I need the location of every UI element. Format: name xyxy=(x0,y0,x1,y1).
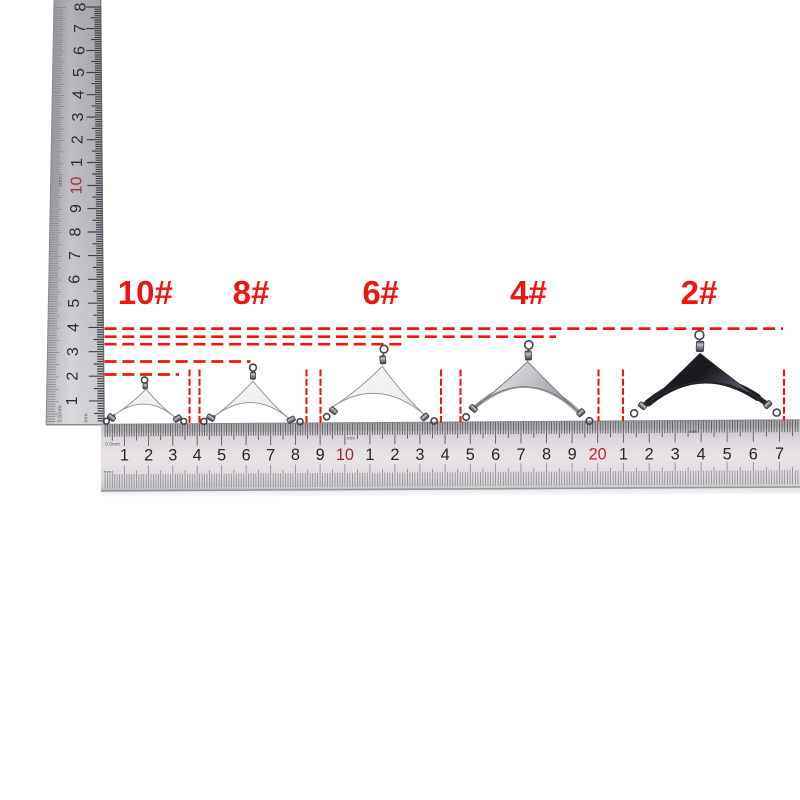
svg-text:2#: 2# xyxy=(681,274,718,311)
svg-text:3: 3 xyxy=(415,446,424,464)
svg-text:5: 5 xyxy=(71,68,88,77)
svg-text:5: 5 xyxy=(66,299,83,308)
svg-text:2: 2 xyxy=(645,446,654,464)
svg-text:0.5mm: 0.5mm xyxy=(58,405,64,422)
svg-text:4: 4 xyxy=(66,323,83,332)
svg-text:0.5mm: 0.5mm xyxy=(105,441,120,447)
svg-text:1: 1 xyxy=(365,446,374,464)
svg-text:mm: mm xyxy=(689,430,697,435)
svg-text:10#: 10# xyxy=(118,274,173,311)
svg-text:10: 10 xyxy=(336,446,354,464)
svg-text:6: 6 xyxy=(71,46,88,55)
svg-text:3: 3 xyxy=(168,447,177,465)
svg-text:8: 8 xyxy=(68,227,85,236)
svg-text:mm: mm xyxy=(58,176,64,186)
svg-text:1: 1 xyxy=(69,158,86,167)
svg-text:6: 6 xyxy=(491,446,500,464)
svg-text:2: 2 xyxy=(144,447,153,465)
svg-text:2: 2 xyxy=(65,372,82,381)
svg-text:8: 8 xyxy=(542,446,551,464)
svg-text:6: 6 xyxy=(242,446,251,464)
svg-text:5: 5 xyxy=(466,446,475,464)
svg-text:2: 2 xyxy=(390,446,399,464)
svg-text:mm: mm xyxy=(347,437,355,442)
svg-text:4: 4 xyxy=(441,446,450,464)
svg-text:4#: 4# xyxy=(510,274,547,311)
svg-text:3: 3 xyxy=(70,113,87,122)
svg-text:9: 9 xyxy=(68,204,85,213)
svg-text:9: 9 xyxy=(568,446,577,464)
svg-text:6#: 6# xyxy=(362,274,399,311)
svg-text:7: 7 xyxy=(775,445,784,463)
svg-text:5: 5 xyxy=(723,445,732,463)
svg-text:3: 3 xyxy=(671,445,680,463)
svg-text:8: 8 xyxy=(72,2,89,11)
svg-text:1: 1 xyxy=(619,446,628,464)
svg-text:20: 20 xyxy=(589,446,607,464)
svg-text:1: 1 xyxy=(120,447,129,465)
svg-text:4: 4 xyxy=(697,445,706,463)
svg-text:4: 4 xyxy=(193,446,202,464)
svg-text:3: 3 xyxy=(65,347,82,356)
svg-text:1: 1 xyxy=(64,396,81,405)
svg-text:8#: 8# xyxy=(233,274,270,311)
svg-text:mm: mm xyxy=(104,470,112,475)
svg-text:8: 8 xyxy=(291,446,300,464)
svg-text:5: 5 xyxy=(217,446,226,464)
svg-text:9: 9 xyxy=(316,446,325,464)
svg-text:10: 10 xyxy=(69,177,86,195)
svg-text:6: 6 xyxy=(749,445,758,463)
svg-text:7: 7 xyxy=(516,446,525,464)
svg-text:4: 4 xyxy=(71,90,88,99)
svg-text:7: 7 xyxy=(266,446,275,464)
svg-text:7: 7 xyxy=(72,24,89,33)
svg-text:6: 6 xyxy=(67,275,84,284)
svg-text:mm: mm xyxy=(84,413,90,423)
svg-text:2: 2 xyxy=(70,135,87,144)
svg-text:7: 7 xyxy=(67,251,84,260)
